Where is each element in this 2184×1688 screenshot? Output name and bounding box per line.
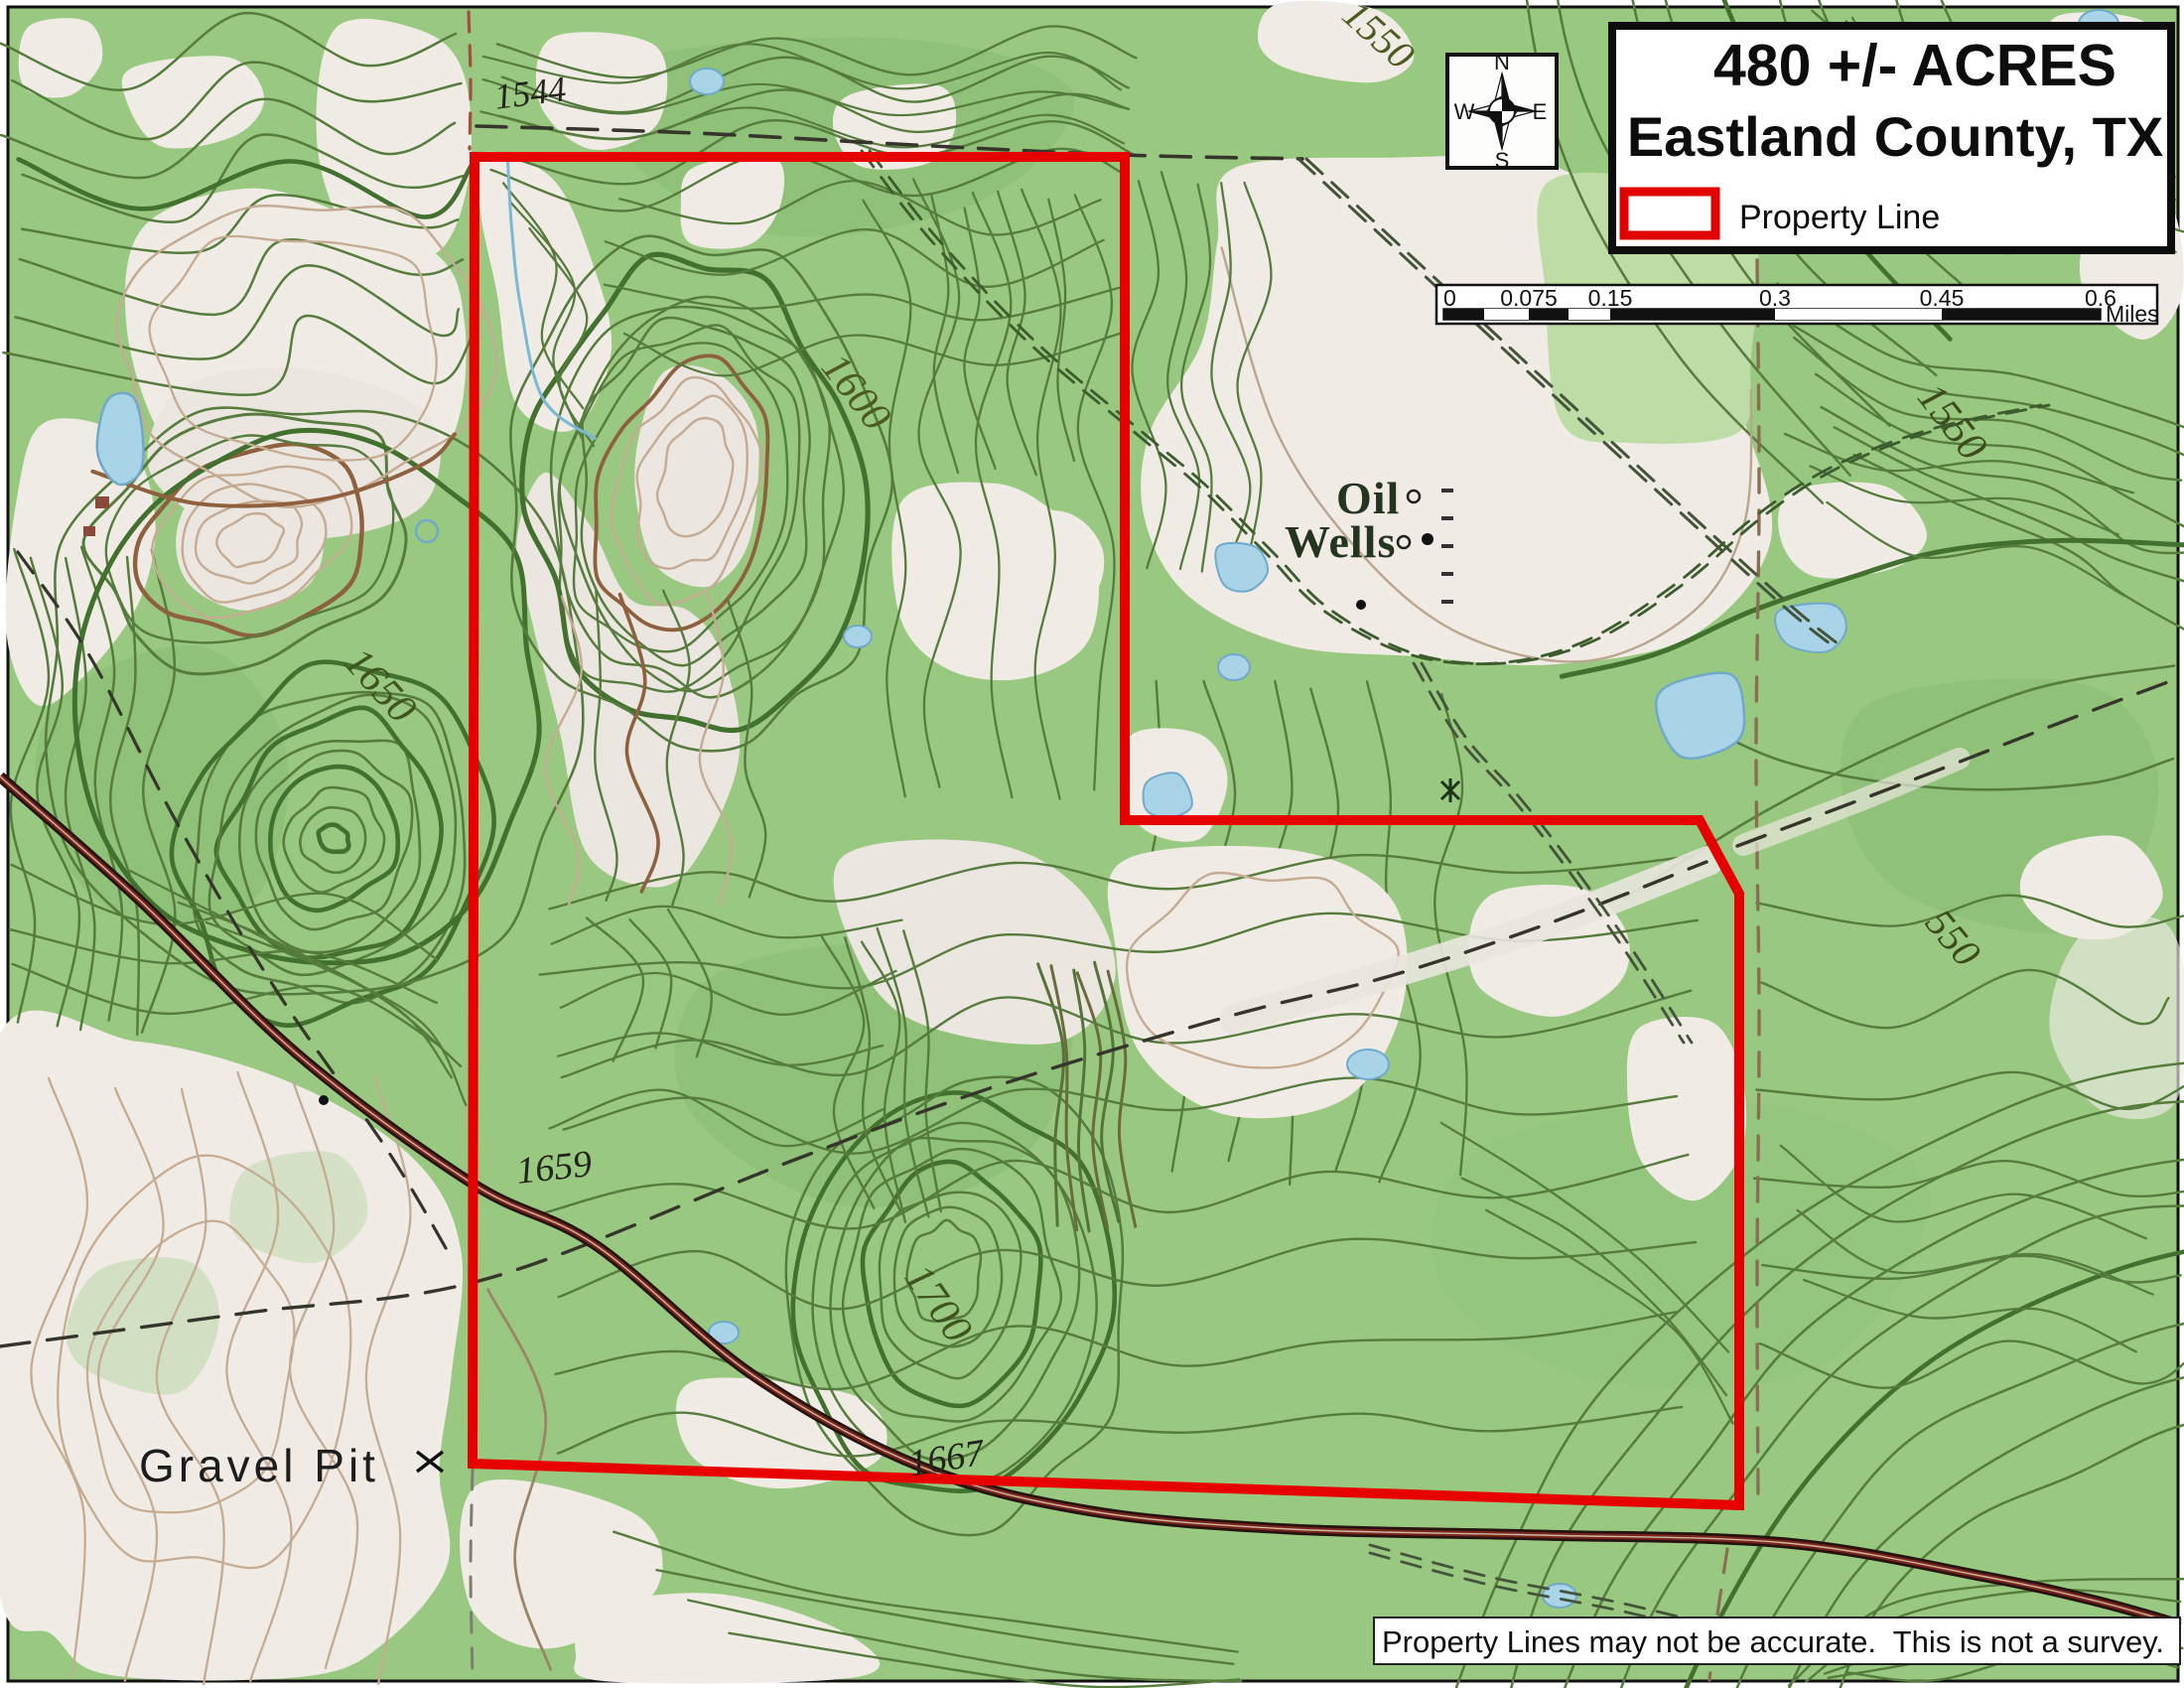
svg-text:0.15: 0.15: [1588, 285, 1633, 311]
svg-text:Property Line: Property Line: [1739, 199, 1940, 236]
svg-text:Gravel Pit: Gravel Pit: [139, 1440, 379, 1491]
svg-text:W: W: [1454, 99, 1475, 124]
svg-text:1659: 1659: [514, 1143, 594, 1193]
svg-text:Wells: Wells: [1285, 516, 1396, 567]
svg-text:Property Lines may not be accu: Property Lines may not be accurate. This…: [1382, 1624, 2164, 1659]
svg-text:0.45: 0.45: [1920, 285, 1965, 311]
svg-text:0: 0: [1443, 285, 1456, 311]
svg-text:480 +/- ACRES: 480 +/- ACRES: [1713, 33, 2116, 98]
svg-text:Eastland County, TX: Eastland County, TX: [1627, 105, 2163, 168]
svg-text:E: E: [1533, 99, 1548, 124]
svg-text:S: S: [1495, 148, 1510, 173]
svg-text:Miles: Miles: [2106, 301, 2159, 327]
svg-text:N: N: [1494, 50, 1510, 74]
svg-text:0.075: 0.075: [1500, 285, 1558, 311]
svg-text:0.3: 0.3: [1759, 285, 1791, 311]
